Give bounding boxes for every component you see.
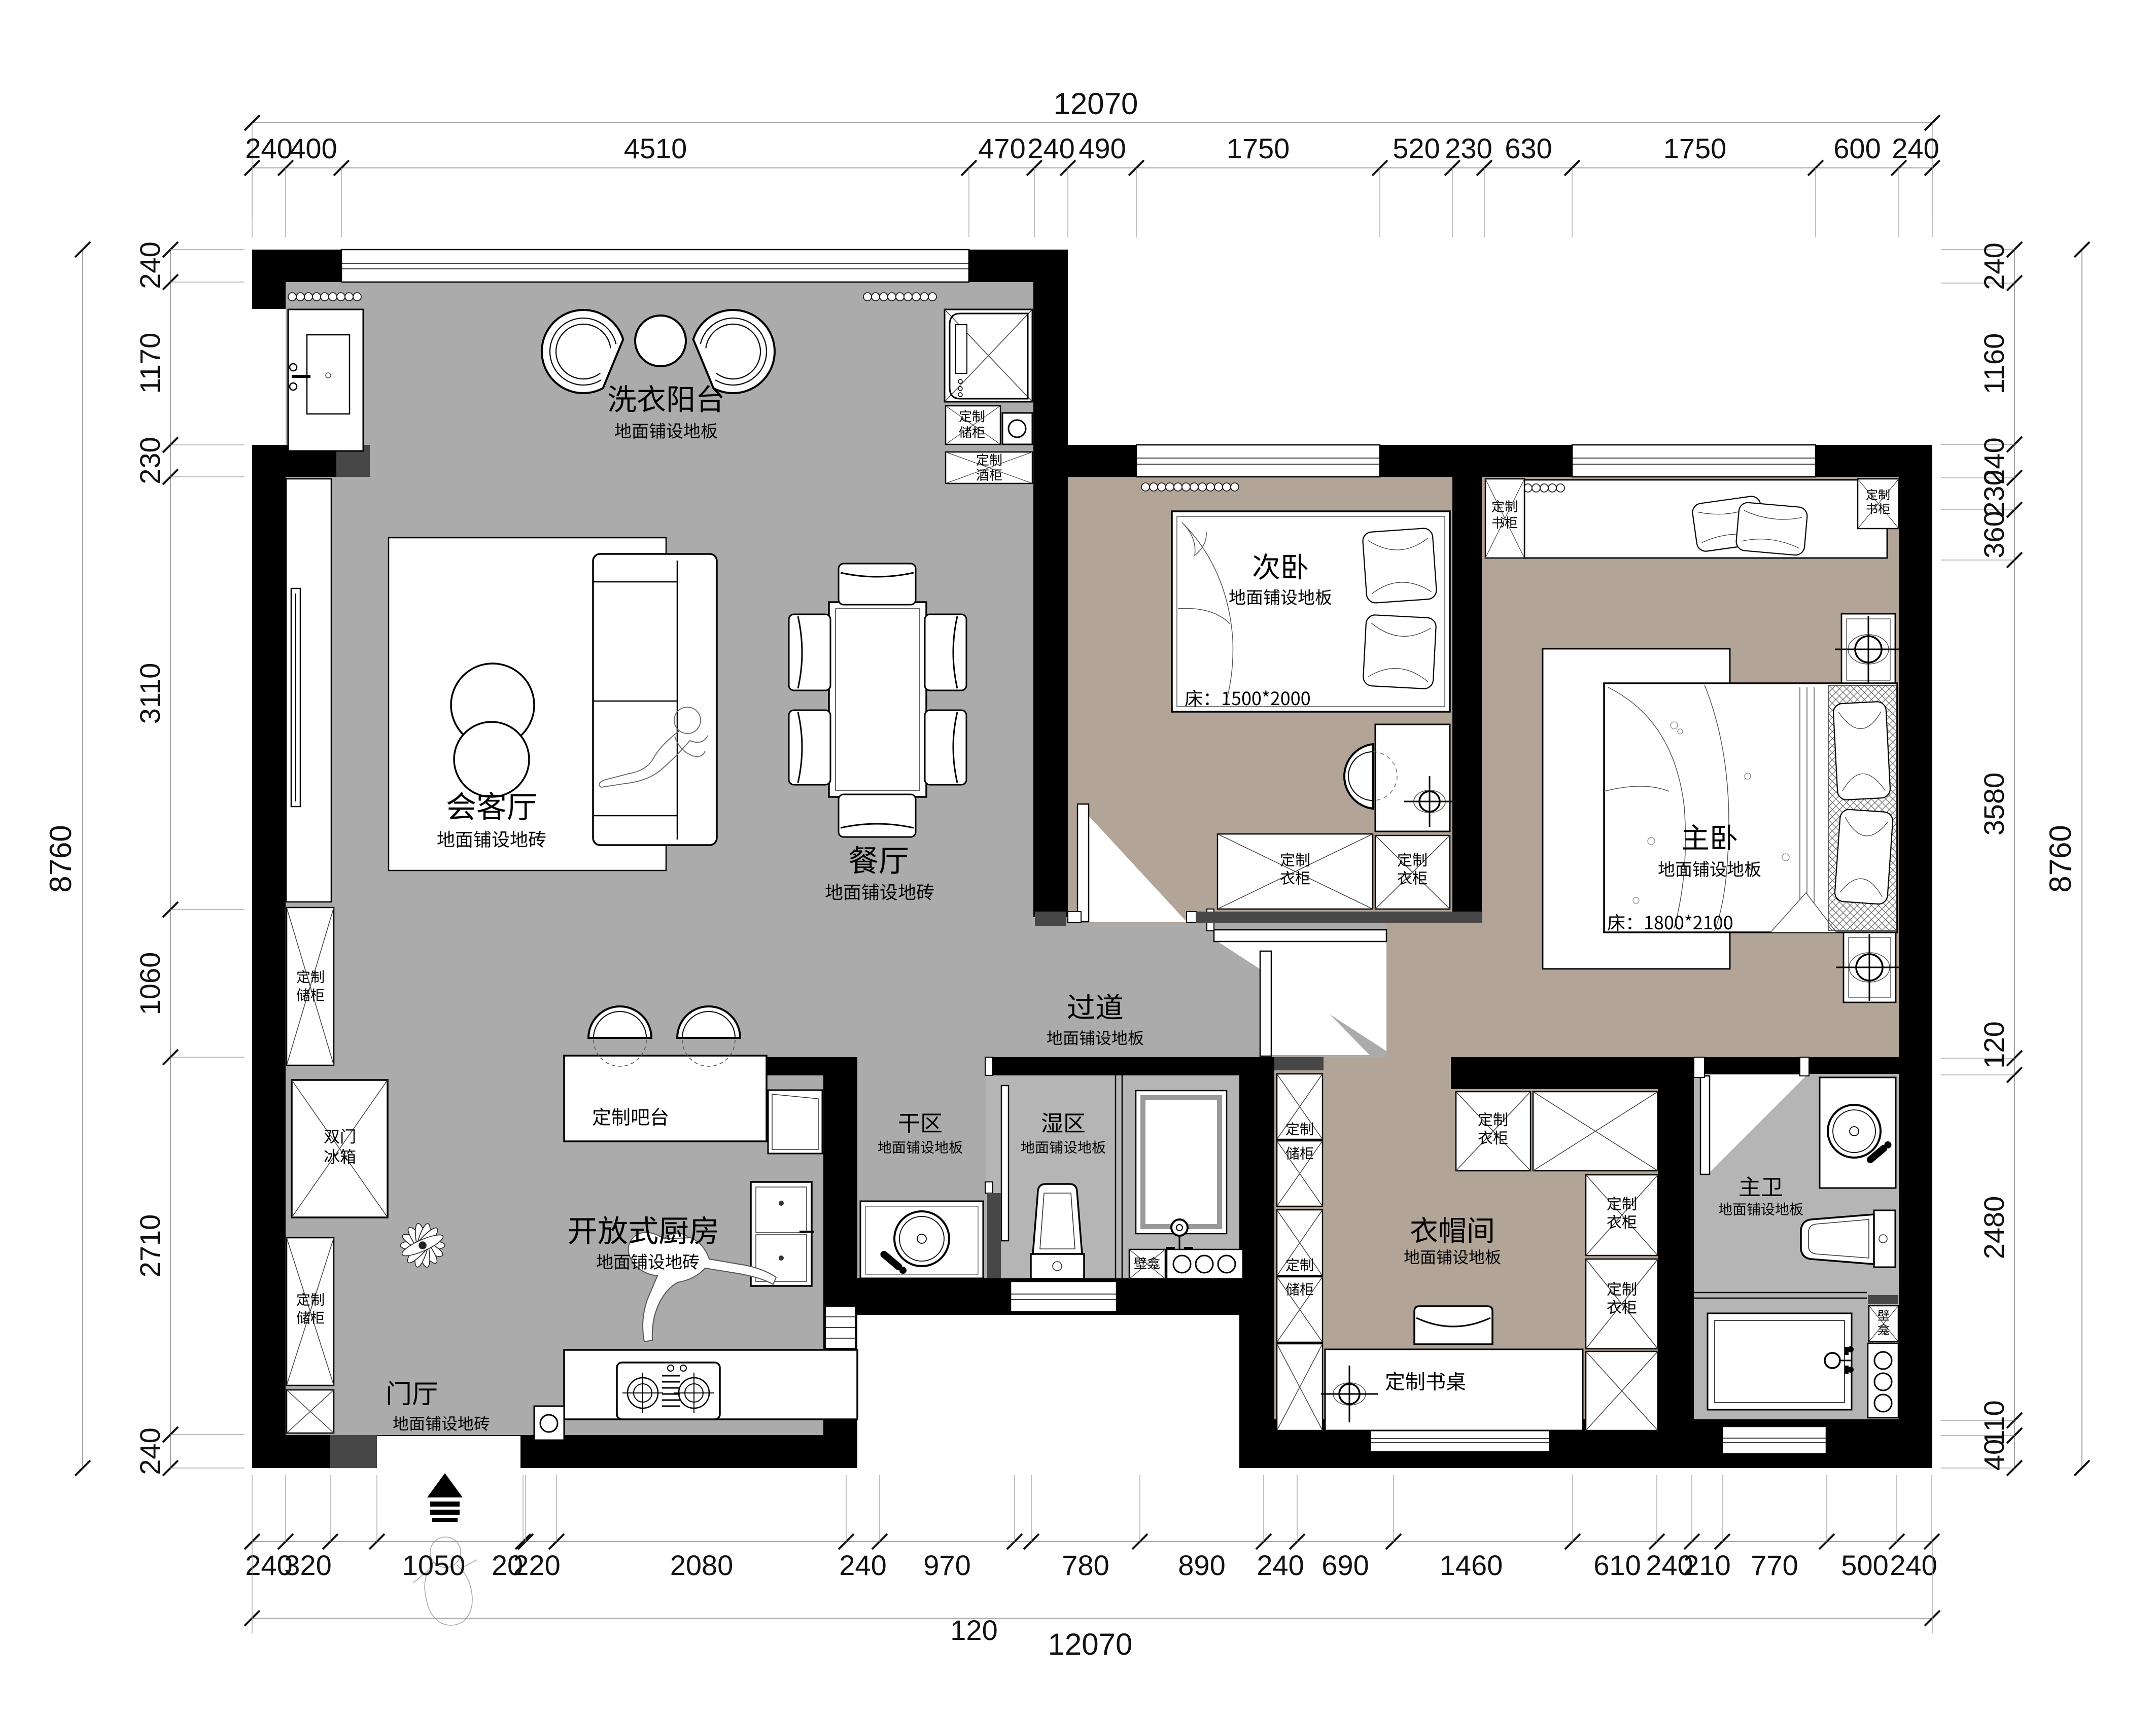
svg-text:210: 210	[1683, 1549, 1730, 1581]
svg-text:230: 230	[134, 437, 166, 484]
svg-text:240: 240	[1978, 242, 2010, 290]
svg-text:690: 690	[1322, 1549, 1369, 1581]
svg-text:610: 610	[1593, 1549, 1641, 1581]
svg-text:470: 470	[978, 132, 1025, 164]
svg-text:120: 120	[1978, 1021, 2010, 1068]
svg-text:220: 220	[513, 1549, 560, 1581]
svg-text:1060: 1060	[134, 952, 166, 1016]
svg-text:40: 40	[1978, 1439, 2010, 1471]
svg-text:8760: 8760	[44, 825, 78, 892]
svg-text:400: 400	[290, 132, 337, 164]
svg-text:970: 970	[923, 1549, 970, 1581]
svg-text:630: 630	[1505, 132, 1552, 164]
svg-text:12070: 12070	[1048, 1627, 1133, 1661]
svg-text:600: 600	[1833, 132, 1881, 164]
svg-text:2710: 2710	[134, 1214, 166, 1278]
svg-text:1750: 1750	[1227, 132, 1290, 164]
svg-text:3580: 3580	[1978, 773, 2010, 836]
svg-text:770: 770	[1751, 1549, 1798, 1581]
svg-text:240: 240	[134, 1427, 166, 1475]
svg-text:3110: 3110	[134, 663, 166, 724]
svg-text:8760: 8760	[2043, 825, 2077, 892]
svg-text:500: 500	[1841, 1549, 1888, 1581]
svg-text:2080: 2080	[670, 1549, 734, 1581]
svg-text:240: 240	[1257, 1549, 1304, 1581]
svg-text:520: 520	[1393, 132, 1440, 164]
svg-text:240: 240	[245, 132, 292, 164]
svg-text:240: 240	[1890, 1549, 1937, 1581]
svg-text:1160: 1160	[1978, 333, 2010, 394]
svg-text:240: 240	[1027, 132, 1074, 164]
svg-text:2480: 2480	[1978, 1196, 2010, 1260]
svg-text:490: 490	[1079, 132, 1126, 164]
svg-text:360: 360	[1978, 511, 2010, 558]
svg-text:110: 110	[1978, 1400, 2010, 1445]
svg-text:1460: 1460	[1440, 1549, 1503, 1581]
svg-text:1050: 1050	[402, 1549, 466, 1581]
svg-text:230: 230	[1445, 132, 1492, 164]
svg-text:320: 320	[284, 1549, 331, 1581]
svg-text:890: 890	[1178, 1549, 1225, 1581]
svg-text:240: 240	[1892, 132, 1939, 164]
svg-text:240: 240	[134, 241, 166, 289]
svg-text:120: 120	[950, 1614, 997, 1646]
svg-text:240: 240	[839, 1549, 886, 1581]
svg-text:1750: 1750	[1663, 132, 1727, 164]
svg-text:12070: 12070	[1054, 87, 1138, 121]
svg-text:780: 780	[1062, 1549, 1109, 1581]
svg-text:4510: 4510	[624, 132, 687, 164]
svg-text:230: 230	[1978, 470, 2010, 517]
svg-text:1170: 1170	[134, 333, 166, 394]
